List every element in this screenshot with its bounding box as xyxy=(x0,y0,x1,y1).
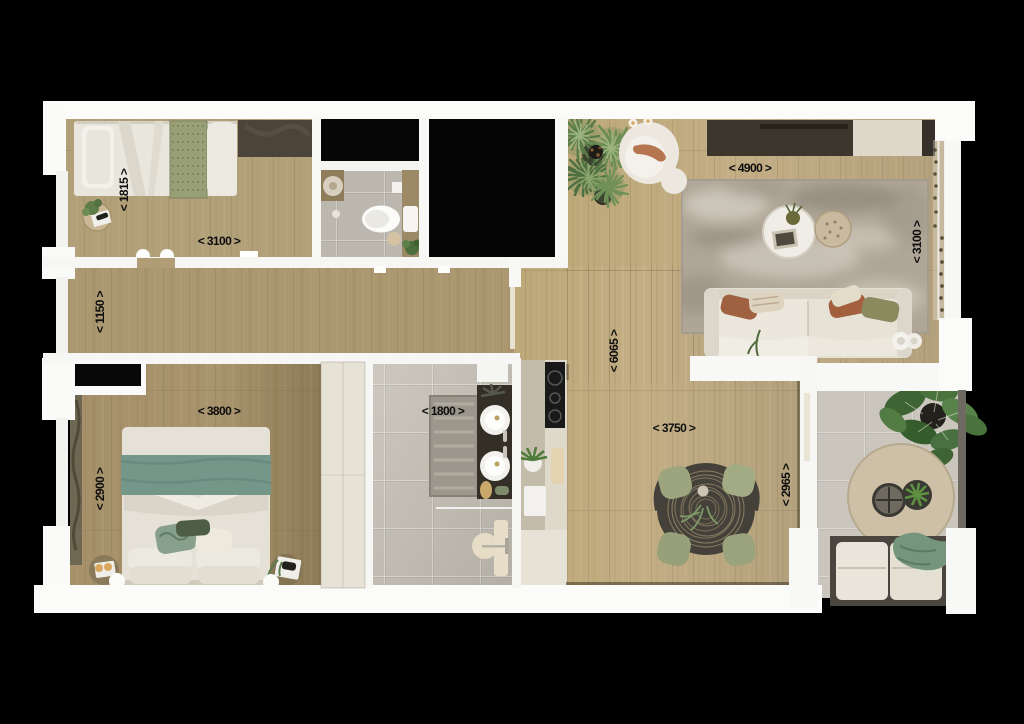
svg-text:< 1150 >: < 1150 > xyxy=(93,290,107,333)
svg-text:< 2900 >: < 2900 > xyxy=(93,467,107,510)
svg-text:< 3100 >: < 3100 > xyxy=(198,234,241,248)
svg-text:< 3800 >: < 3800 > xyxy=(198,404,241,418)
svg-text:< 1800 >: < 1800 > xyxy=(422,404,465,418)
svg-text:< 6065 >: < 6065 > xyxy=(607,329,621,372)
svg-text:< 2965 >: < 2965 > xyxy=(779,463,793,506)
svg-text:< 3100 >: < 3100 > xyxy=(910,220,924,263)
svg-text:< 4900 >: < 4900 > xyxy=(729,161,772,175)
svg-text:< 1815 >: < 1815 > xyxy=(117,168,131,211)
svg-text:< 3750 >: < 3750 > xyxy=(653,421,696,435)
